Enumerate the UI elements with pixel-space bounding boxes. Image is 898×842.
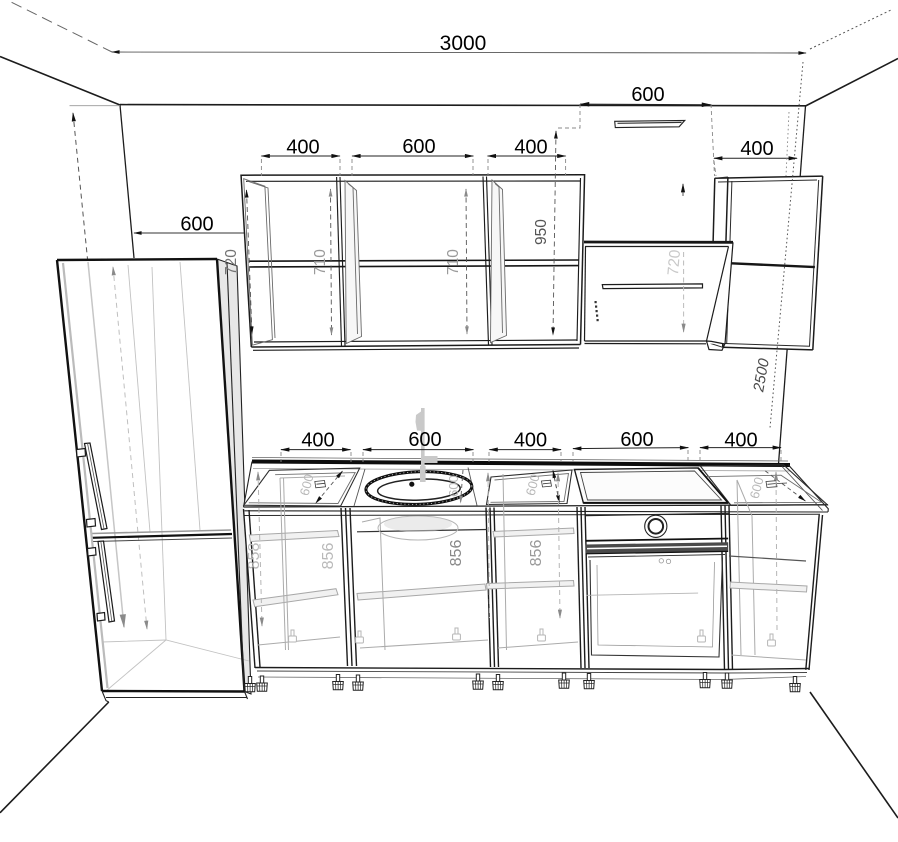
svg-text:600: 600 bbox=[446, 475, 461, 497]
svg-text:600: 600 bbox=[631, 84, 664, 106]
svg-text:856: 856 bbox=[320, 543, 337, 570]
svg-text:720: 720 bbox=[223, 249, 240, 275]
svg-text:710: 710 bbox=[312, 249, 329, 275]
svg-text:600: 600 bbox=[620, 429, 653, 451]
svg-text:858: 858 bbox=[246, 543, 263, 570]
svg-text:720: 720 bbox=[665, 249, 684, 277]
svg-text:710: 710 bbox=[445, 249, 462, 275]
svg-text:600: 600 bbox=[180, 214, 213, 236]
svg-text:856: 856 bbox=[448, 540, 465, 567]
svg-text:856: 856 bbox=[528, 540, 545, 567]
svg-text:400: 400 bbox=[724, 430, 757, 452]
svg-text:600: 600 bbox=[408, 429, 441, 451]
svg-text:400: 400 bbox=[514, 137, 547, 159]
svg-text:3000: 3000 bbox=[440, 32, 487, 55]
svg-text:600: 600 bbox=[402, 136, 435, 158]
svg-text:400: 400 bbox=[740, 138, 773, 160]
svg-text:400: 400 bbox=[301, 430, 334, 452]
svg-text:950: 950 bbox=[533, 219, 550, 245]
svg-text:400: 400 bbox=[514, 430, 547, 452]
svg-text:400: 400 bbox=[286, 137, 319, 159]
